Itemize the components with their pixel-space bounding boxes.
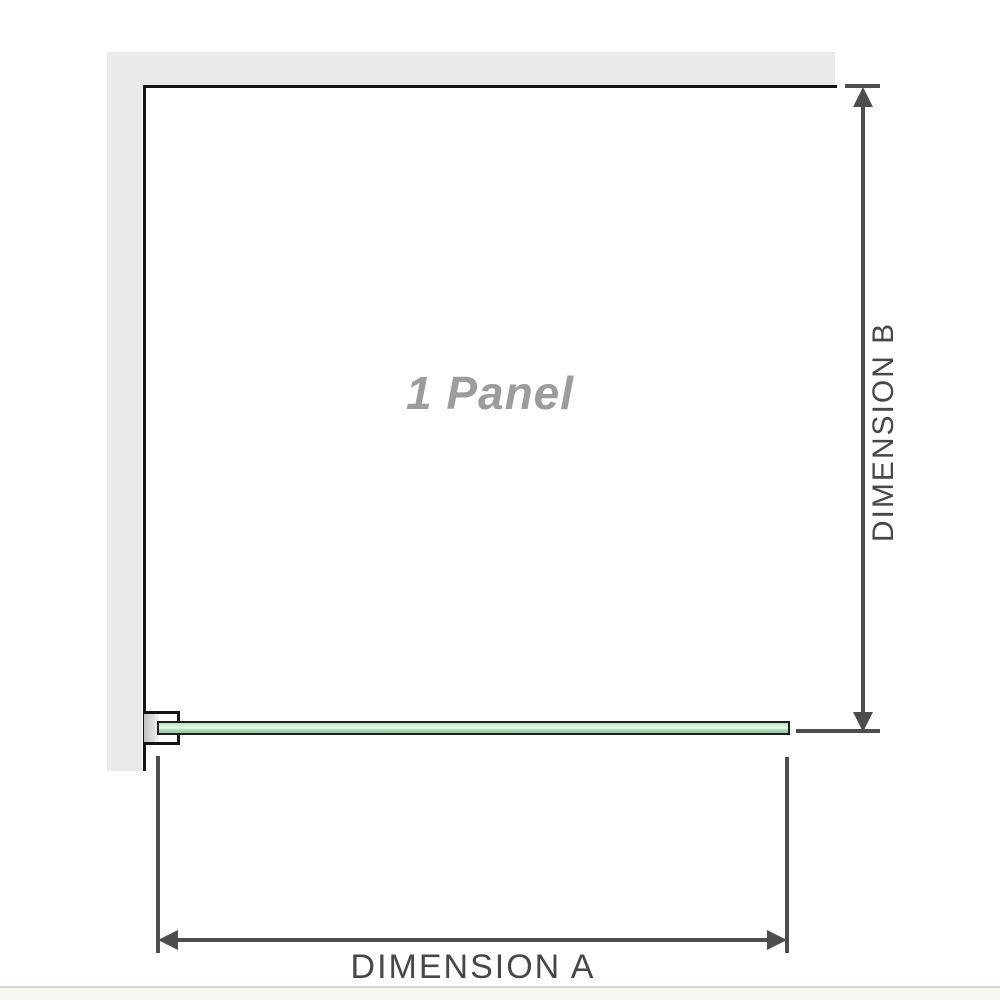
dimension-b-line [861, 100, 865, 716]
arrow-down-icon [853, 712, 873, 732]
arrow-up-icon [853, 87, 873, 107]
diagram-canvas: 1 Panel DIMENSION B DIMENSION A [0, 0, 1000, 1000]
glass-panel [157, 721, 790, 735]
dimension-a-line [170, 938, 775, 942]
footer-background [0, 988, 1000, 1000]
dimension-a-label: DIMENSION A [160, 948, 786, 987]
panel-outline-top [143, 85, 837, 88]
dimension-a-right-extension [785, 757, 789, 953]
panel-count-label: 1 Panel [143, 368, 837, 419]
dimension-b-label: DIMENSION B [867, 322, 901, 542]
panel-outline-left [143, 85, 146, 771]
wall-left [107, 52, 142, 771]
arrow-left-icon [158, 930, 178, 950]
arrow-right-icon [767, 930, 787, 950]
wall-top [107, 52, 835, 85]
dimension-a-left-extension [156, 756, 160, 953]
